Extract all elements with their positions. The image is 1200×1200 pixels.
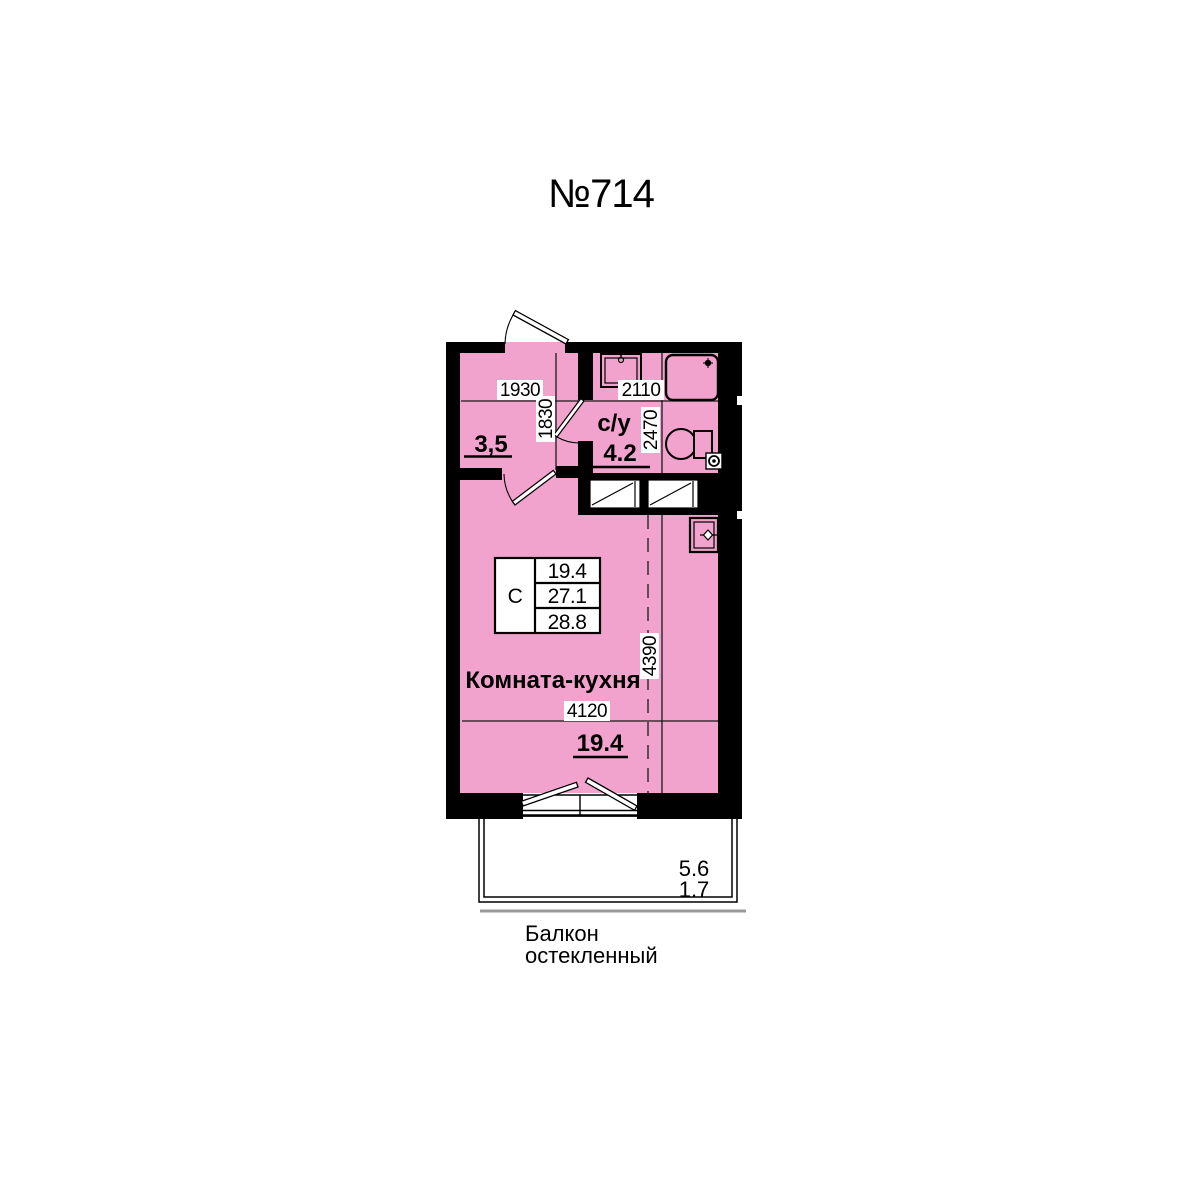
info-box: С 19.4 27.1 28.8 — [495, 558, 600, 634]
wall-notch-2 — [737, 511, 742, 519]
dim-hallway-width: 1930 — [500, 380, 540, 401]
floor-plan-svg: №714 — [0, 0, 1200, 1200]
wall-bathroom-upper — [578, 342, 593, 400]
dim-room-depth: 4390 — [640, 636, 661, 676]
wall-bottom-left — [446, 793, 523, 819]
dim-hallway-depth: 1830 — [536, 399, 557, 439]
stat-area: 27.1 — [548, 585, 587, 608]
apartment-number: №714 — [548, 172, 654, 216]
stat-living-area: 19.4 — [548, 560, 588, 583]
wall-hall-stub-left — [446, 468, 502, 480]
entrance-door-leaf — [513, 311, 568, 344]
water-outlet — [706, 453, 722, 469]
room-name-label: Комната-кухня — [465, 667, 640, 694]
wardrobe-2 — [648, 480, 698, 508]
stat-total-area: 28.8 — [548, 611, 587, 634]
wall-right — [718, 342, 742, 819]
entrance-door-swing — [505, 315, 513, 344]
floor-plan-page: №714 — [0, 0, 1200, 1200]
dim-bathroom-width: 2110 — [622, 380, 661, 401]
dim-bathroom-depth: 2470 — [641, 410, 662, 450]
bathroom-area-label: 4.2 — [603, 440, 636, 467]
wall-bottom-right — [637, 793, 742, 819]
balcony-label-line2: остекленный — [525, 943, 658, 968]
balcony-area-reduced: 1.7 — [679, 877, 710, 902]
stat-type: С — [508, 585, 523, 608]
water-outlet-dot — [712, 459, 716, 463]
wall-notch-1 — [737, 396, 742, 405]
wall-left — [446, 342, 460, 819]
room-area-label: 19.4 — [577, 730, 624, 757]
hallway-area-label: 3,5 — [474, 431, 507, 458]
bathroom-name-label: с/у — [597, 410, 631, 437]
dim-room-width: 4120 — [567, 701, 607, 722]
wardrobe-1 — [590, 480, 640, 508]
